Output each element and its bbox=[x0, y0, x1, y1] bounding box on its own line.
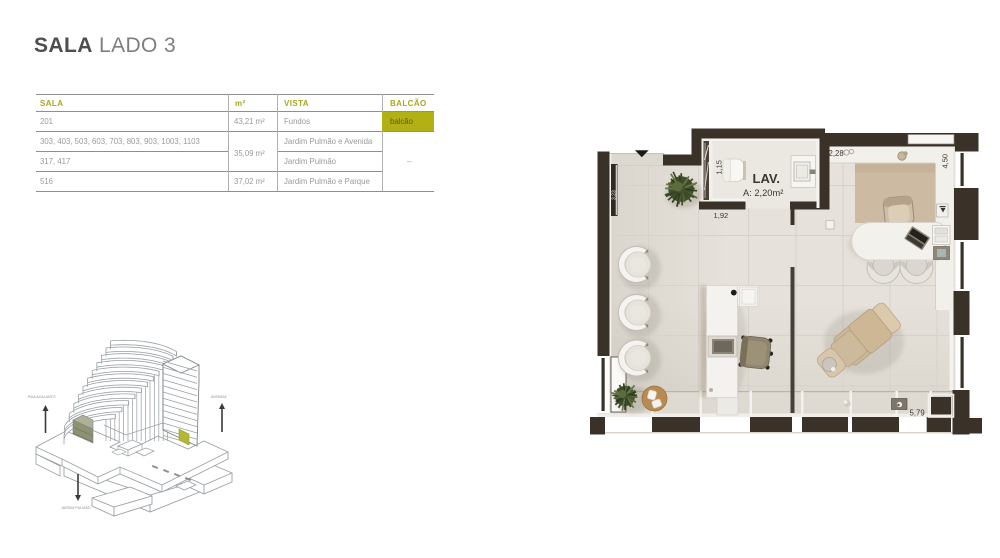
svg-text:3,23: 3,23 bbox=[612, 190, 618, 200]
svg-text:AVENIDA: AVENIDA bbox=[211, 395, 227, 399]
svg-text:4,50: 4,50 bbox=[941, 154, 950, 169]
svg-text:1,92: 1,92 bbox=[714, 211, 729, 220]
svg-text:JARDIM PULMÃO: JARDIM PULMÃO bbox=[61, 505, 91, 510]
svg-text:A: 2,20m²: A: 2,20m² bbox=[743, 188, 783, 198]
svg-text:LAV.: LAV. bbox=[753, 171, 780, 186]
svg-text:2,28: 2,28 bbox=[829, 149, 844, 158]
svg-text:RUA ACALANTO: RUA ACALANTO bbox=[28, 395, 56, 399]
svg-text:1,15: 1,15 bbox=[715, 160, 724, 174]
svg-text:5,79: 5,79 bbox=[910, 409, 925, 418]
